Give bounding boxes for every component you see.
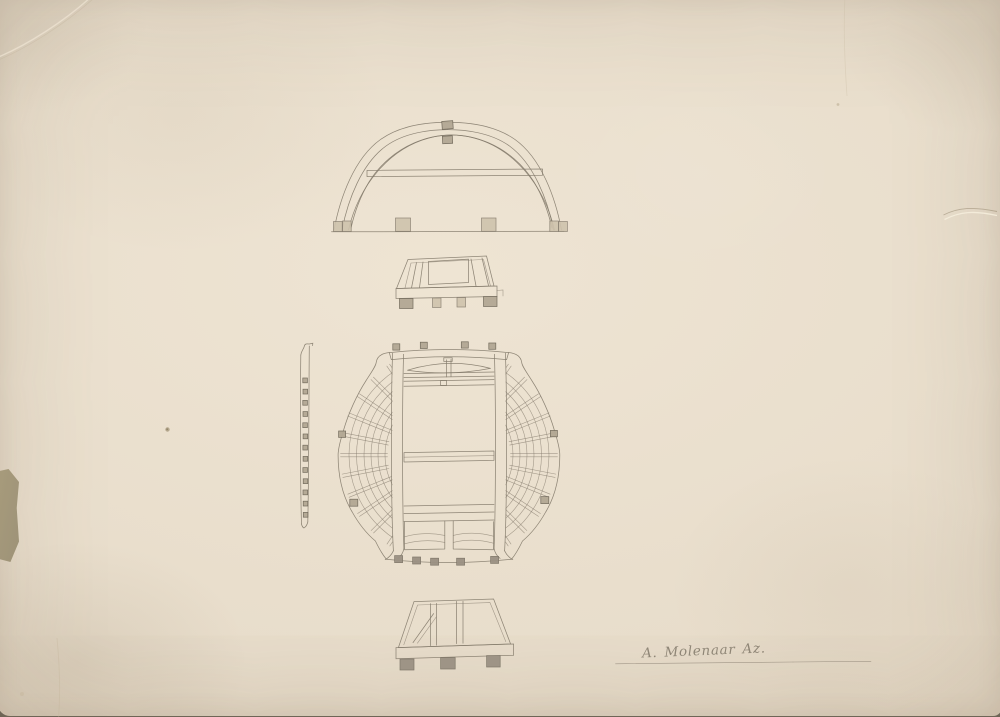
bottom-block <box>413 557 421 564</box>
plan-mid-beam <box>404 451 494 462</box>
tie-beam <box>367 169 543 177</box>
view-upper-base-frame <box>396 256 503 309</box>
cap-block <box>393 344 400 350</box>
rim-block <box>350 499 358 506</box>
rim-block <box>541 497 549 504</box>
stain-speck <box>20 692 24 696</box>
apex-block <box>442 121 454 130</box>
plan-spokes-right <box>482 364 558 546</box>
crease-top-left <box>0 0 92 58</box>
frame-foot <box>441 658 456 669</box>
plan-spokes-left <box>341 364 417 546</box>
frame-outline <box>398 599 510 648</box>
bottom-block <box>431 558 439 565</box>
arch-foot <box>559 222 568 232</box>
view-circular-plan <box>338 342 560 565</box>
frame-foot <box>400 299 414 309</box>
rim-block <box>339 431 346 437</box>
rim-block <box>550 430 557 436</box>
crease-top-right <box>844 0 847 96</box>
bottom-block <box>457 558 465 565</box>
arch-baseline <box>332 231 565 232</box>
arch-foot <box>550 221 559 232</box>
stain-speck <box>837 103 840 106</box>
technical-drawing <box>0 0 1000 717</box>
cap-block <box>461 342 468 348</box>
bottom-block <box>395 556 403 563</box>
bottom-block <box>491 556 499 563</box>
plan-rings-and-spokes <box>341 355 558 555</box>
view-arch-cross-section <box>332 121 568 232</box>
view-lower-base-frame <box>396 599 514 670</box>
frame-foot <box>457 298 466 308</box>
strip-mortise-holes <box>303 378 308 517</box>
arch-foot <box>334 222 343 232</box>
frame-foot <box>433 298 442 308</box>
arch-foot <box>343 221 352 232</box>
crease-bottom-left <box>57 638 60 717</box>
cap-block <box>420 342 427 348</box>
base-block <box>396 218 411 231</box>
signature-underline <box>616 661 872 664</box>
cap-block <box>489 343 496 349</box>
arch-crossing-rib <box>349 135 553 230</box>
frame-foot <box>487 656 501 667</box>
frame-beam <box>396 286 497 299</box>
frame-center-panel <box>429 259 469 284</box>
base-block <box>482 218 497 231</box>
apex-block <box>442 136 452 144</box>
plan-lower-section <box>386 504 512 565</box>
frame-foot <box>400 659 414 670</box>
strip-taper-bottom <box>302 522 308 528</box>
view-side-profile-strip <box>300 343 312 528</box>
scan-background: A. Molenaar Az. <box>0 0 1000 717</box>
plan-lens-panel <box>404 358 494 386</box>
frame-foot <box>484 297 498 307</box>
strip-ogee-top <box>301 343 313 355</box>
